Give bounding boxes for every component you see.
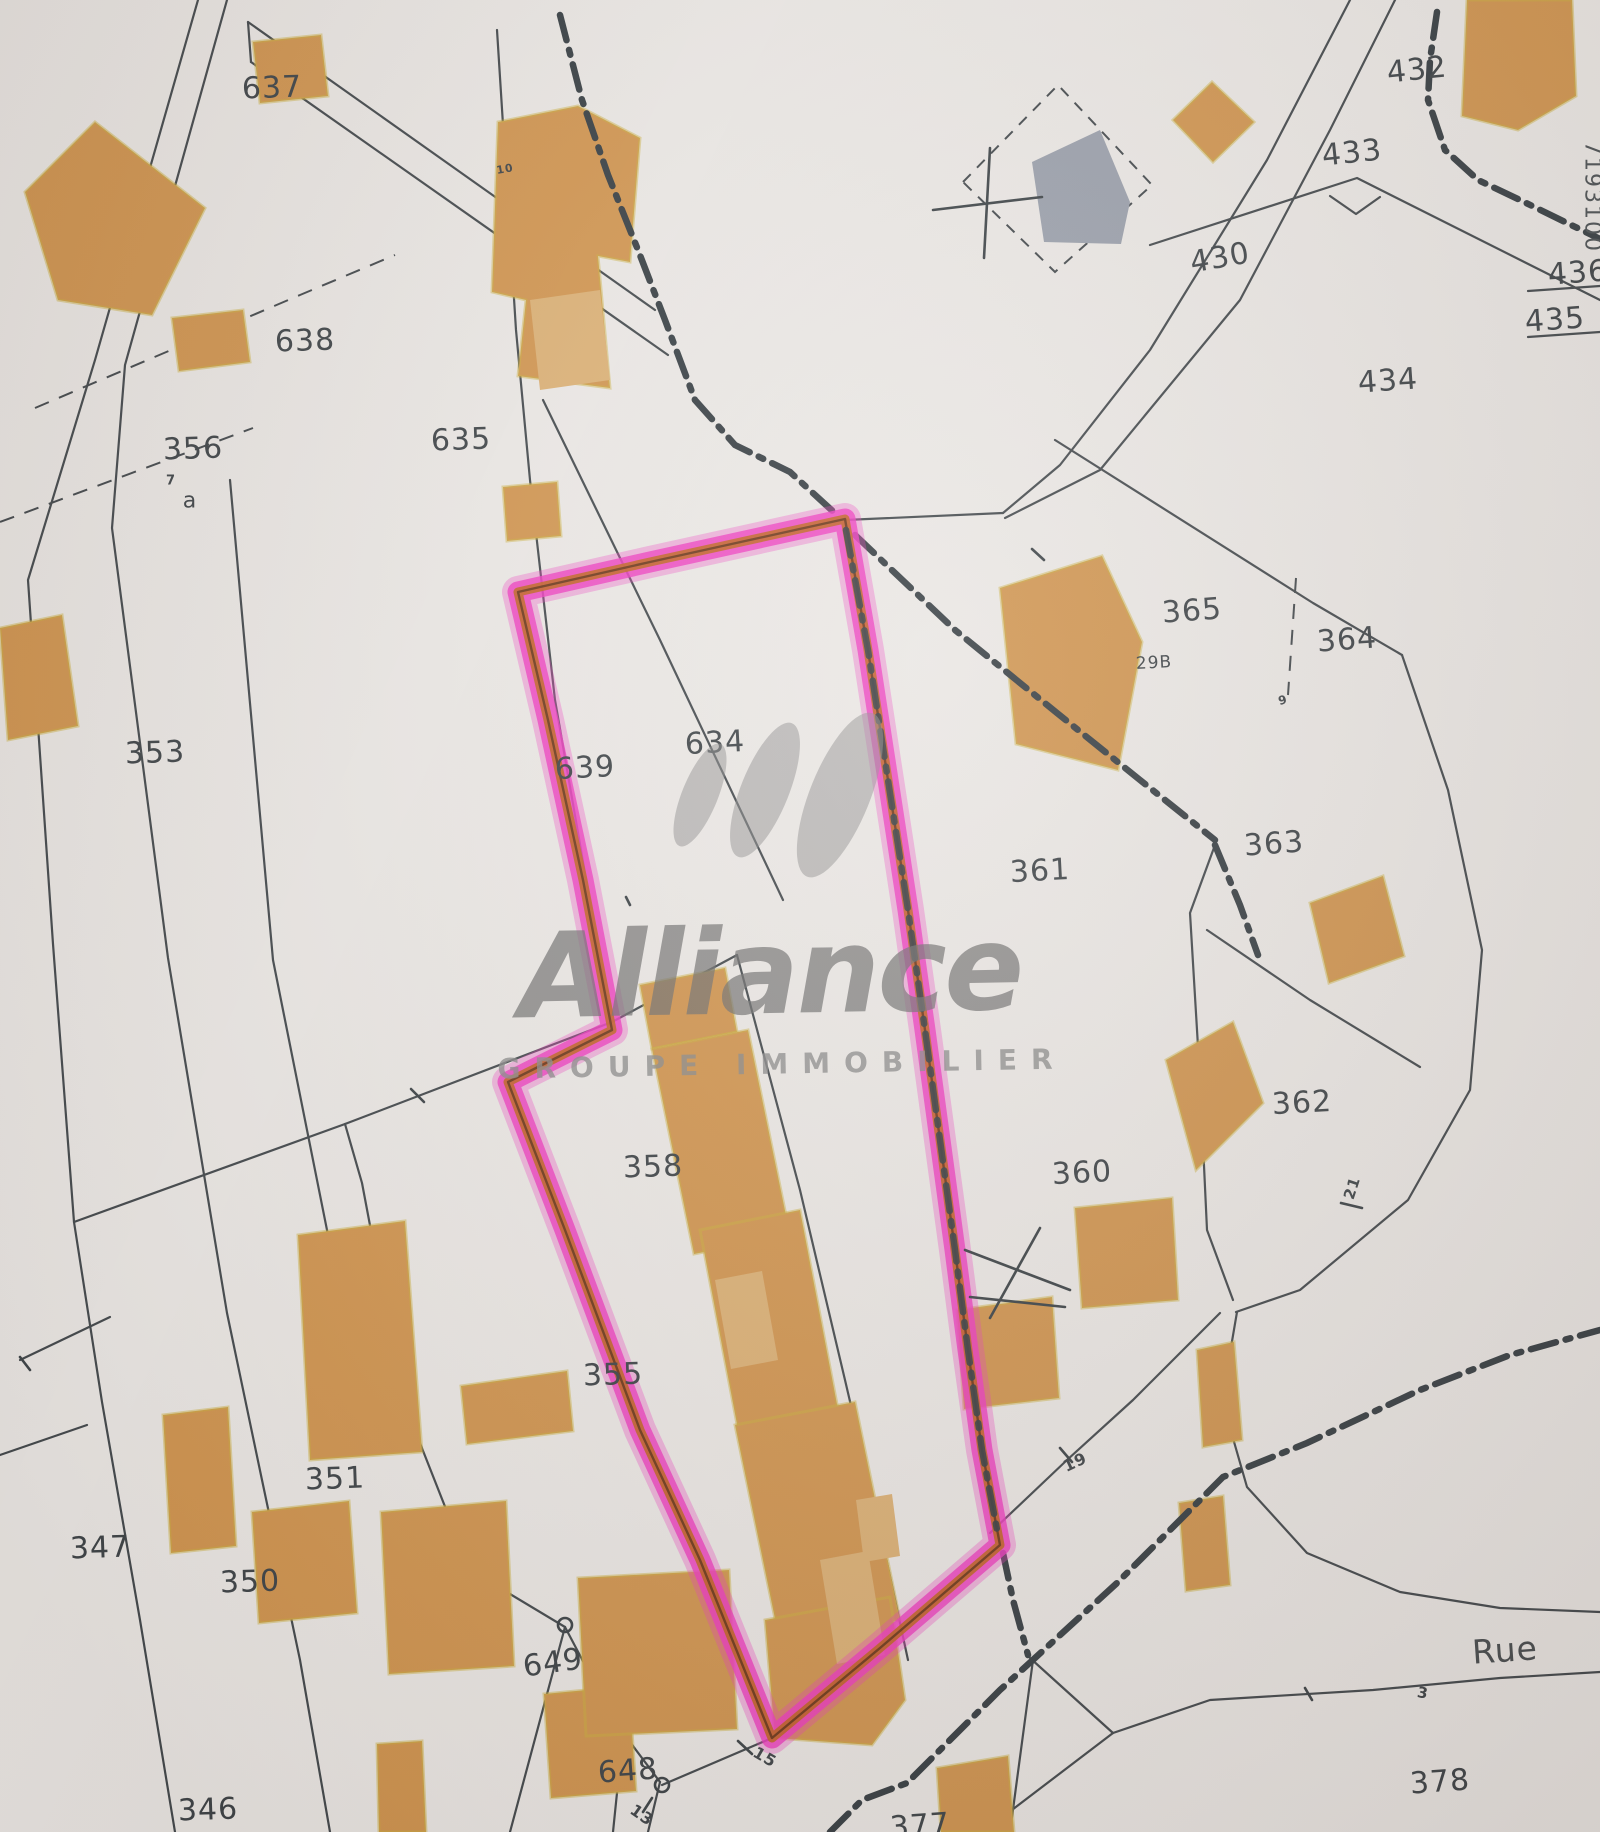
- map-label-430: 430: [1187, 236, 1252, 281]
- map-label-435: 435: [1524, 300, 1587, 339]
- map-label-7193100: 7193100: [1580, 141, 1600, 253]
- map-label-3: 3: [1416, 1683, 1430, 1703]
- map-label-638: 638: [274, 322, 335, 359]
- map-label-13: 13: [627, 1800, 658, 1829]
- map-label-434: 434: [1357, 361, 1420, 400]
- map-label-350: 350: [219, 1563, 280, 1600]
- map-label-639: 639: [554, 749, 616, 787]
- map-label-635: 635: [430, 421, 491, 458]
- map-label-rue: Rue: [1471, 1628, 1539, 1671]
- map-label-21: 21: [1340, 1174, 1364, 1201]
- map-label-358: 358: [622, 1148, 683, 1185]
- map-label-353: 353: [124, 734, 185, 771]
- map-label-356: 356: [162, 430, 223, 467]
- map-label-361: 361: [1009, 852, 1071, 890]
- map-label-433: 433: [1320, 132, 1384, 173]
- map-label-347: 347: [69, 1529, 130, 1566]
- map-label-351: 351: [304, 1460, 365, 1497]
- map-label-15: 15: [750, 1743, 781, 1772]
- cadastral-map-photo: 6376386353567a10353639634432433430436435…: [0, 0, 1600, 1832]
- map-label-9: 9: [1277, 692, 1290, 708]
- map-label-649: 649: [521, 1641, 586, 1684]
- map-label-363: 363: [1243, 824, 1306, 863]
- map-label-362: 362: [1271, 1084, 1333, 1122]
- labels-layer: 6376386353567a10353639634432433430436435…: [0, 0, 1600, 1832]
- map-label-365: 365: [1161, 591, 1224, 630]
- map-label-378: 378: [1409, 1762, 1472, 1801]
- map-label-a: a: [183, 489, 197, 514]
- map-label-634: 634: [684, 724, 746, 762]
- map-label-377: 377: [889, 1806, 952, 1832]
- map-label-637: 637: [241, 69, 302, 106]
- map-label-346: 346: [177, 1791, 238, 1828]
- map-label-436: 436: [1547, 253, 1600, 292]
- map-label-432: 432: [1385, 49, 1449, 90]
- map-label-7: 7: [166, 474, 176, 489]
- map-label-364: 364: [1316, 620, 1379, 659]
- map-label-19: 19: [1060, 1448, 1090, 1475]
- map-label-360: 360: [1051, 1154, 1113, 1192]
- map-label-648: 648: [597, 1751, 660, 1790]
- map-label-10: 10: [495, 161, 514, 177]
- map-label-355: 355: [582, 1356, 643, 1393]
- map-label-29b: 29B: [1135, 652, 1172, 674]
